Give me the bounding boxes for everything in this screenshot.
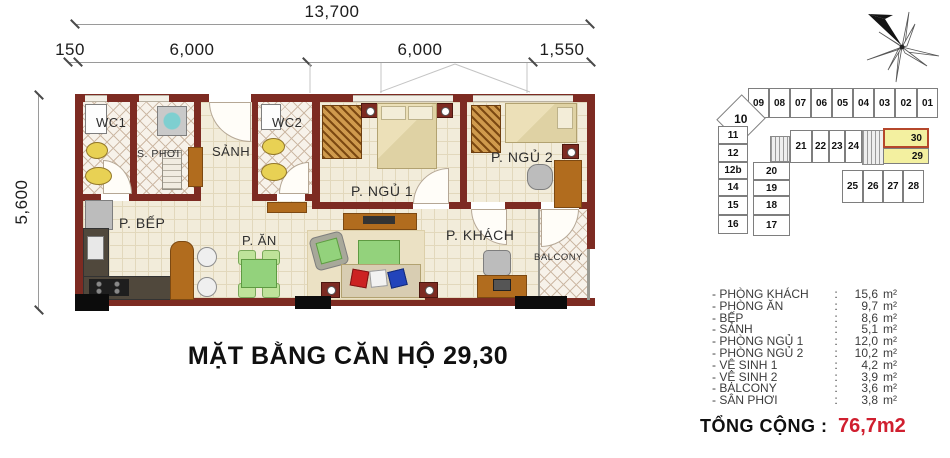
keyplan-unit-28: 28: [903, 170, 924, 203]
desk-chair: [483, 250, 511, 276]
label-bep: P. BẾP: [119, 215, 165, 231]
column: [75, 294, 109, 311]
keyplan-elevator: [862, 130, 884, 165]
gap-wc2: [277, 194, 305, 201]
keyplan-unit-29-highlighted: 29: [883, 148, 929, 164]
washing-machine: [157, 106, 187, 136]
keyplan-unit-07: 07: [790, 88, 811, 118]
wall-sanh-wc2: [252, 102, 258, 201]
pillow: [408, 106, 433, 120]
keyplan-unit-06: 06: [811, 88, 832, 118]
tv: [363, 216, 395, 224]
keyplan-unit-21: 21: [790, 130, 812, 163]
keyplan-unit-14: 14: [718, 179, 748, 196]
bar-stool: [197, 247, 217, 267]
dim-total-label: 13,700: [282, 2, 382, 22]
wall-balcony-right: [587, 249, 590, 300]
keyplan-unit-20: 20: [753, 162, 790, 180]
keyplan-unit-19: 19: [753, 180, 790, 196]
plan-title: MẶT BẰNG CĂN HỘ 29,30: [158, 342, 538, 371]
keyplan-unit-18: 18: [753, 196, 790, 215]
kitchen-sink: [87, 236, 104, 260]
dim-tick: [34, 90, 44, 100]
keyplan-unit-17: 17: [753, 215, 790, 236]
window-bedroom2: [473, 95, 573, 102]
area-name: - SÂN PHƠI: [712, 395, 830, 407]
wc1-toilet: [85, 167, 112, 185]
area-list: - PHÒNG KHÁCH : 15,6 m² - PHÒNG ĂN : 9,7…: [712, 289, 944, 407]
label-khach: P. KHÁCH: [446, 227, 514, 243]
wc1-sink: [86, 142, 108, 159]
keyplan-unit-05: 05: [832, 88, 853, 118]
wc2-toilet: [261, 163, 287, 181]
fridge: [85, 200, 113, 230]
dim-height-label: 5,600: [12, 172, 32, 232]
nightstand: [436, 103, 453, 118]
gap-bed2: [471, 202, 505, 209]
column: [515, 296, 567, 309]
keyplan-unit-02: 02: [895, 88, 917, 118]
keyplan-unit-23: 23: [829, 130, 845, 163]
keyplan-unit-12: 12: [718, 144, 748, 162]
chair-bed2: [527, 164, 553, 190]
keyplan-stairs: [770, 136, 790, 162]
bar-stool: [197, 277, 217, 297]
label-an: P. ĂN: [242, 233, 277, 248]
pillow: [381, 106, 406, 120]
keyplan-unit-12b: 12b: [718, 162, 748, 179]
keyplan-unit-11: 11: [718, 126, 748, 144]
hall-bench: [267, 202, 307, 213]
context-lines: [300, 55, 590, 95]
keyplan-unit-27: 27: [883, 170, 903, 203]
wall-right: [587, 94, 595, 249]
label-ngu2: P. NGỦ 2: [491, 149, 553, 165]
window-wc1: [85, 95, 107, 102]
total-value: 76,7m2: [838, 415, 906, 437]
label-sphoi: S. PHƠI: [137, 148, 180, 160]
dim-total-line: [75, 24, 591, 25]
label-ngu1: P. NGỦ 1: [351, 183, 413, 199]
keyplan-unit-16: 16: [718, 215, 748, 234]
kitchen-island: [170, 241, 194, 300]
apartment-floorplan: WC1 S. PHƠI SẢNH WC2 P. BẾP P. ĂN P. NGỦ…: [75, 94, 595, 316]
pillow: [557, 107, 573, 129]
area-unit: m²: [878, 395, 897, 407]
keyplan-unit-26: 26: [863, 170, 883, 203]
cushion-white: [369, 269, 388, 288]
label-wc2: WC2: [272, 115, 302, 130]
dim-seg1-label: 150: [48, 40, 92, 60]
wall-wc2-bed1: [312, 102, 320, 209]
total-label: TỔNG CỘNG :: [700, 416, 828, 436]
gap-entrance: [209, 94, 251, 102]
keyplan-unit-25: 25: [842, 170, 863, 203]
wardrobe-bed1: [322, 105, 362, 159]
dim-height-line: [38, 95, 39, 311]
area-value: 3,8: [842, 395, 878, 407]
dim-tick: [34, 305, 44, 315]
nightstand: [562, 144, 579, 159]
wardrobe-bed2: [471, 105, 501, 153]
coffee-table: [358, 240, 400, 266]
side-table: [419, 282, 438, 298]
window-sphoi: [139, 95, 169, 102]
computer: [493, 279, 511, 291]
label-balcony: BALCONY: [534, 252, 583, 263]
desk-bed2: [554, 160, 582, 208]
wc2-sink: [262, 138, 285, 155]
keyplan-unit-15: 15: [718, 196, 748, 215]
keyplan-unit-04: 04: [853, 88, 874, 118]
nightstand: [361, 103, 378, 118]
dining-table: [241, 259, 277, 288]
keyplan-unit-01: 01: [917, 88, 938, 118]
hall-console: [188, 147, 203, 187]
wall-bed1-bed2: [460, 102, 467, 209]
window-bedroom1: [353, 95, 453, 102]
wall-left: [75, 94, 83, 306]
floorplan-page: { "title": "MẶT BẰNG CĂN HỘ 29,30", "dim…: [0, 0, 950, 458]
keyplan-unit-24: 24: [845, 130, 862, 163]
compass-north-icon: [855, 2, 945, 87]
keyplan-unit-03: 03: [874, 88, 895, 118]
area-row: - SÂN PHƠI : 3,8 m²: [712, 395, 944, 407]
dim-seg2-label: 6,000: [152, 40, 232, 60]
column: [295, 296, 331, 309]
cushion-red: [350, 269, 370, 289]
label-wc1: WC1: [96, 115, 126, 130]
building-keyplan: 09 08 07 06 05 04 03 02 01 10 11 12 12b …: [695, 86, 947, 248]
keyplan-unit-08: 08: [769, 88, 790, 118]
keyplan-unit-30-highlighted: 30: [883, 128, 929, 148]
total-area: TỔNG CỘNG : 76,7m2: [700, 415, 944, 438]
area-row: - PHÒNG ĂN : 9,7 m²: [712, 301, 944, 313]
label-sanh: SẢNH: [212, 144, 250, 159]
area-colon: :: [830, 395, 842, 407]
keyplan-unit-22: 22: [812, 130, 829, 163]
